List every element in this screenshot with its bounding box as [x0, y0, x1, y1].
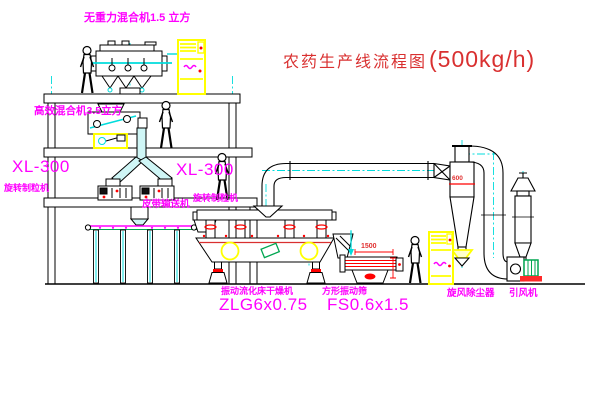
label-dryer-model: ZLG6x0.75	[219, 296, 308, 313]
no-gravity-mixer	[86, 41, 178, 94]
building-column-left	[48, 94, 55, 284]
fan-base	[520, 276, 542, 282]
granulator-left	[98, 186, 132, 200]
dryer-feet	[209, 262, 325, 283]
label-granulator-right-model: XL-300	[176, 161, 234, 178]
person-figure	[409, 237, 422, 284]
granulator-right	[140, 186, 174, 200]
belt-conveyor	[85, 225, 197, 283]
title-text: 农药生产线流程图	[283, 48, 427, 72]
cad-flow-diagram: 农药生产线流程图 (500kg/h) 无重力混合机1.5 立方 高效混合机3.5…	[0, 0, 600, 403]
exhaust-duct	[254, 161, 450, 217]
dimension-screen-length: 1500	[361, 243, 377, 250]
label-no-gravity-mixer: 无重力混合机1.5 立方	[84, 13, 190, 24]
fluid-bed-dryer	[193, 210, 336, 283]
label-high-efficiency-mixer: 高效混合机3.5立方	[34, 106, 122, 117]
label-belt-conveyor: 皮带输送机	[142, 200, 190, 210]
title-capacity: (500kg/h)	[429, 46, 535, 73]
control-cabinet-top	[178, 40, 205, 94]
label-granulator-left-name: 旋转制粒机	[4, 184, 49, 193]
label-screen-model: FS0.6x1.5	[327, 296, 409, 313]
person-figure	[81, 47, 94, 94]
floor-slab-1	[44, 94, 240, 103]
granulator-feed-chutes	[106, 157, 172, 186]
label-cyclone: 旋风除尘器	[447, 289, 495, 299]
control-cabinet-cyclone	[429, 232, 453, 284]
fan-suction-pipe	[469, 146, 508, 281]
exhaust-stack	[511, 173, 535, 261]
conveyor-legs	[94, 230, 180, 283]
diagram-title: 农药生产线流程图 (500kg/h)	[283, 46, 535, 73]
dimension-cyclone-inlet: 600	[452, 176, 463, 183]
square-vibrating-screen	[340, 249, 403, 283]
label-granulator-right-name: 旋转制粒机	[193, 194, 238, 203]
rotary-valve	[452, 250, 472, 258]
person-figure	[160, 102, 173, 149]
screen-feed-chute	[333, 231, 354, 258]
label-fan: 引风机	[509, 289, 538, 299]
label-granulator-left-model: XL-300	[12, 158, 70, 175]
dryer-ports	[205, 220, 327, 238]
induced-draft-fan	[507, 257, 542, 282]
